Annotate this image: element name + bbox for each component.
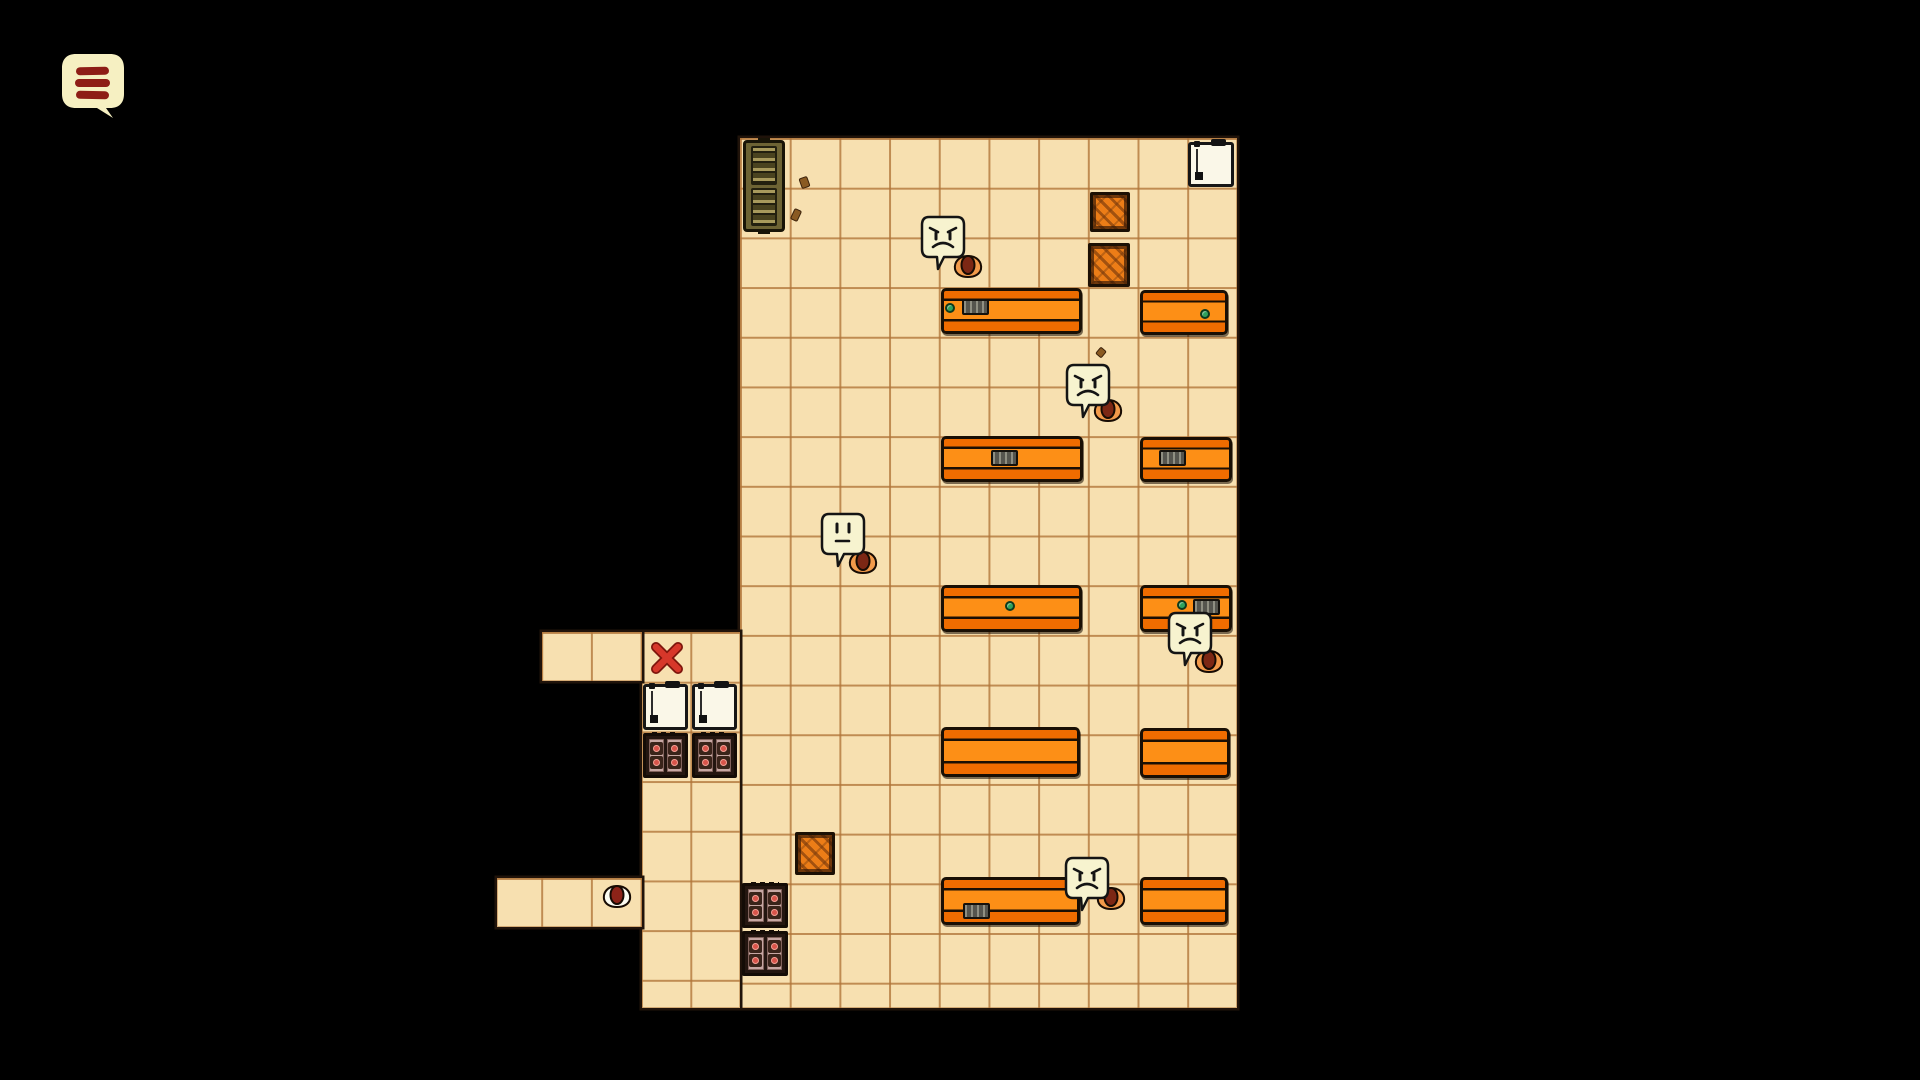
speech-bubble	[919, 214, 967, 272]
stove-panel	[698, 739, 713, 772]
stove-panel	[767, 889, 783, 922]
speech-bubble	[819, 511, 867, 569]
stove-panel	[716, 739, 731, 772]
lid-hinge	[649, 683, 655, 689]
stove-panel	[748, 937, 764, 970]
keyboard-item	[991, 450, 1018, 466]
locker-door	[751, 146, 777, 185]
speech-bubble	[1064, 362, 1112, 420]
lid-hinge	[698, 683, 704, 689]
game-viewport	[0, 0, 1920, 1080]
burner-icon	[717, 742, 730, 755]
green-item	[945, 303, 955, 313]
green-item	[1200, 309, 1210, 319]
burner-icon	[749, 940, 762, 953]
keyboard-item	[963, 903, 990, 919]
lid-handle	[714, 681, 729, 688]
wooden-crate[interactable]	[1088, 243, 1130, 287]
floor-region-annex-top-strip	[542, 632, 642, 681]
game-stage	[0, 0, 1920, 1080]
burner-icon	[749, 954, 762, 967]
office-desk[interactable]	[1140, 728, 1230, 778]
burner-icon	[668, 742, 681, 755]
speech-bubble	[1166, 610, 1214, 668]
lid-handle	[665, 681, 680, 688]
stove-panel	[649, 739, 664, 772]
burner-icon	[749, 892, 762, 905]
stove[interactable]	[742, 931, 788, 976]
green-item	[1005, 601, 1015, 611]
stove-panel	[767, 937, 783, 970]
burner-icon	[650, 742, 663, 755]
wooden-crate[interactable]	[795, 832, 835, 875]
stove[interactable]	[742, 883, 788, 928]
keyboard-item	[962, 299, 989, 315]
stove[interactable]	[692, 733, 737, 778]
hamburger-menu-icon	[58, 50, 128, 120]
burner-icon	[650, 756, 663, 769]
menu-button[interactable]	[58, 50, 128, 120]
stove[interactable]	[643, 733, 688, 778]
refrigerator[interactable]	[692, 684, 737, 730]
office-desk[interactable]	[1140, 437, 1232, 482]
office-desk[interactable]	[1140, 877, 1228, 925]
wooden-crate[interactable]	[1090, 192, 1130, 232]
lid-handle	[1211, 139, 1226, 146]
stove-panel	[667, 739, 682, 772]
burner-icon	[768, 940, 781, 953]
lid-hinge	[1194, 141, 1200, 147]
burner-icon	[768, 954, 781, 967]
red-x-mark	[650, 641, 684, 675]
burner-icon	[717, 756, 730, 769]
burner-icon	[668, 756, 681, 769]
burner-icon	[768, 892, 781, 905]
office-desk[interactable]	[1140, 290, 1228, 335]
green-item	[1177, 600, 1187, 610]
office-desk[interactable]	[941, 727, 1080, 777]
stove-panel	[748, 889, 764, 922]
locker-door	[751, 188, 777, 227]
white-mouse[interactable]	[600, 883, 633, 910]
white-appliance[interactable]	[1188, 142, 1234, 187]
burner-icon	[699, 756, 712, 769]
x-mark-icon	[650, 641, 684, 675]
keyboard-item	[1159, 450, 1186, 466]
burner-icon	[749, 906, 762, 919]
supply-locker[interactable]	[743, 140, 785, 232]
burner-icon	[699, 742, 712, 755]
refrigerator[interactable]	[643, 684, 688, 730]
speech-bubble	[1063, 855, 1111, 913]
office-desk[interactable]	[941, 877, 1080, 925]
burner-icon	[768, 906, 781, 919]
